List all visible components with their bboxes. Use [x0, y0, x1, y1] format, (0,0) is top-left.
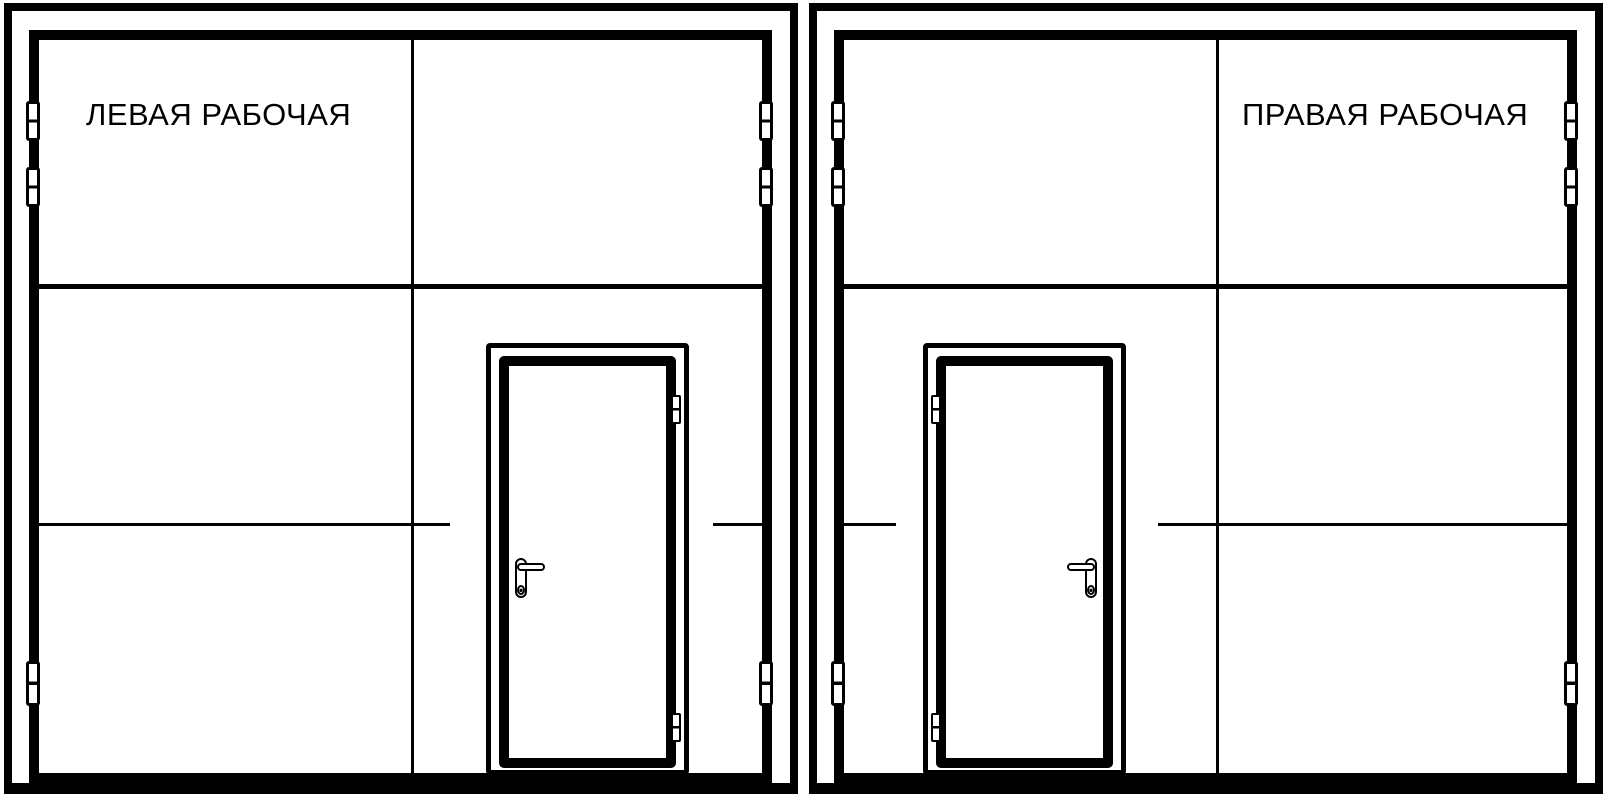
door-hinge-icon [931, 395, 941, 424]
door-hinge-icon [931, 713, 941, 742]
gate-hinge-icon [759, 167, 773, 207]
upper-panel-seam [844, 284, 1567, 289]
gate-panel-right-working: ПРАВАЯ РАБОЧАЯ [805, 0, 1605, 794]
gate-variant-label: ЛЕВАЯ РАБОЧАЯ [86, 99, 351, 130]
gate-hinge-icon [1564, 167, 1578, 207]
gates-technical-drawing: ЛЕВАЯ РАБОЧАЯ ПРАВАЯ РАБОЧАЯ [0, 0, 1605, 794]
wicket-door [486, 343, 689, 775]
gate-hinge-icon [1564, 661, 1578, 706]
wicket-door [923, 343, 1126, 775]
door-keyhole-icon [1087, 585, 1095, 595]
door-handle-lever-icon [1067, 563, 1095, 571]
gate-hinge-icon [759, 661, 773, 706]
lower-panel-seam-right-segment [1158, 523, 1567, 526]
gate-hinge-icon [831, 101, 845, 141]
gate-hinge-icon [759, 101, 773, 141]
gate-hinge-icon [26, 661, 40, 706]
leaves-meeting-stile [1216, 40, 1219, 773]
lower-panel-seam-left-segment [844, 523, 896, 526]
door-hinge-icon [671, 713, 681, 742]
lower-panel-seam-left-segment [39, 523, 450, 526]
gate-hinge-icon [831, 167, 845, 207]
leaves-meeting-stile [411, 40, 414, 773]
gate-hinge-icon [1564, 101, 1578, 141]
door-handle-lever-icon [517, 563, 545, 571]
gate-variant-label: ПРАВАЯ РАБОЧАЯ [1242, 99, 1528, 130]
upper-panel-seam [39, 284, 762, 289]
gate-panel-left-working: ЛЕВАЯ РАБОЧАЯ [0, 0, 800, 794]
door-keyhole-icon [517, 585, 525, 595]
gate-hinge-icon [26, 101, 40, 141]
gate-hinge-icon [26, 167, 40, 207]
gate-hinge-icon [831, 661, 845, 706]
lower-panel-seam-right-segment [713, 523, 762, 526]
door-hinge-icon [671, 395, 681, 424]
